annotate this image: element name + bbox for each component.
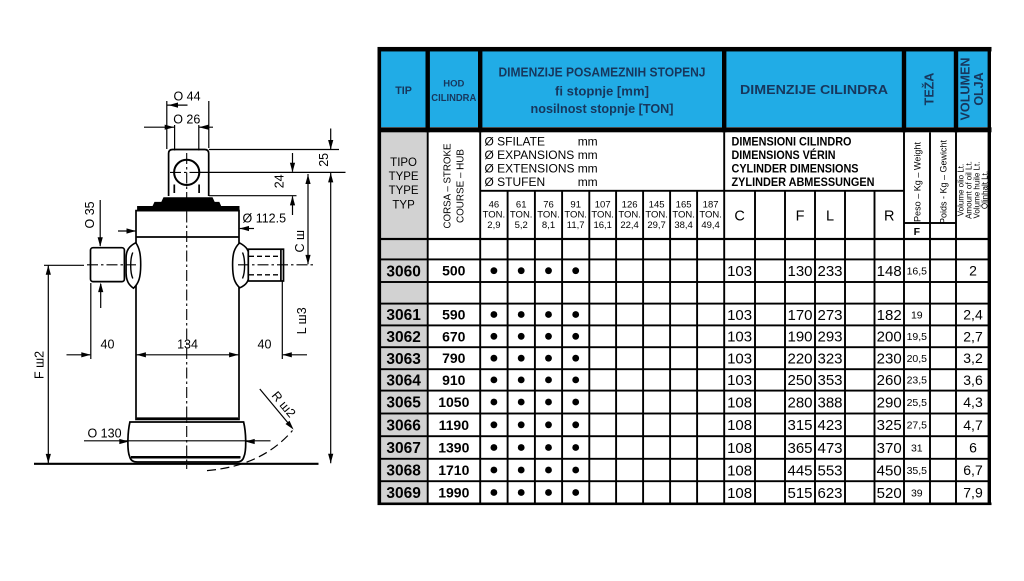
svg-text:CILINDRA: CILINDRA [431, 93, 476, 104]
svg-text:108: 108 [727, 394, 752, 411]
svg-text:353: 353 [817, 372, 842, 389]
svg-text:423: 423 [817, 417, 842, 434]
svg-text:fi stopnje [mm]: fi stopnje [mm] [555, 83, 649, 98]
svg-text:CORSA – STROKE: CORSA – STROKE [443, 143, 454, 228]
svg-text:TYP: TYP [392, 199, 415, 211]
svg-text:108: 108 [727, 440, 752, 457]
svg-text:TON.: TON. [645, 209, 668, 220]
svg-text:mm: mm [578, 135, 598, 149]
svg-text:130: 130 [787, 263, 812, 280]
svg-text:6,7: 6,7 [963, 462, 983, 478]
svg-text:VOLUMEN: VOLUMEN [959, 58, 973, 121]
svg-text:103: 103 [727, 372, 752, 389]
svg-text:230: 230 [877, 351, 902, 368]
svg-text:473: 473 [817, 440, 842, 457]
svg-text:16,5: 16,5 [907, 266, 928, 278]
svg-text:23,5: 23,5 [907, 375, 928, 387]
svg-text:19,5: 19,5 [907, 331, 928, 343]
svg-text:O 44: O 44 [173, 89, 200, 103]
svg-text:590: 590 [442, 307, 466, 323]
svg-text:8,1: 8,1 [542, 220, 555, 231]
svg-text:365: 365 [787, 440, 812, 457]
svg-text:TEŽA: TEŽA [922, 73, 937, 106]
svg-text:3060: 3060 [386, 263, 420, 280]
svg-text:OLJA: OLJA [972, 72, 986, 105]
svg-text:103: 103 [727, 307, 752, 324]
svg-text:3,2: 3,2 [963, 350, 983, 366]
svg-text:49,4: 49,4 [701, 220, 720, 231]
svg-text:ZYLINDER ABMESSUNGEN: ZYLINDER ABMESSUNGEN [732, 177, 875, 189]
svg-text:mm: mm [578, 162, 598, 176]
svg-text:CYLINDER DIMENSIONS: CYLINDER DIMENSIONS [732, 164, 859, 176]
svg-text:3066: 3066 [386, 417, 421, 434]
svg-text:31: 31 [911, 442, 923, 454]
svg-text:2,7: 2,7 [963, 328, 983, 344]
svg-text:39: 39 [911, 487, 923, 499]
svg-text:5,2: 5,2 [515, 220, 528, 231]
svg-text:220: 220 [787, 351, 812, 368]
svg-text:HOD: HOD [443, 78, 464, 89]
svg-text:108: 108 [727, 462, 752, 479]
svg-text:25: 25 [317, 153, 331, 167]
svg-text:3063: 3063 [386, 351, 421, 368]
svg-text:mm: mm [578, 148, 598, 162]
svg-text:315: 315 [787, 417, 812, 434]
svg-text:293: 293 [817, 329, 842, 346]
svg-text:Ø 112.5: Ø 112.5 [243, 212, 287, 226]
svg-text:40: 40 [101, 337, 115, 351]
svg-text:R: R [884, 209, 894, 225]
svg-text:3061: 3061 [386, 307, 421, 324]
svg-text:Peso – Kg – Weight: Peso – Kg – Weight [912, 142, 923, 222]
svg-text:38,4: 38,4 [674, 220, 693, 231]
svg-text:40: 40 [258, 337, 272, 351]
svg-text:182: 182 [877, 307, 902, 324]
svg-text:170: 170 [787, 307, 812, 324]
svg-text:134: 134 [177, 337, 198, 351]
svg-text:27,5: 27,5 [907, 420, 928, 432]
svg-text:2,9: 2,9 [487, 220, 500, 231]
svg-text:103: 103 [727, 329, 752, 346]
svg-text:Ø STUFEN: Ø STUFEN [485, 175, 546, 189]
svg-text:TON.: TON. [483, 209, 506, 220]
svg-text:TYPE: TYPE [389, 185, 419, 197]
svg-text:TON.: TON. [537, 209, 560, 220]
svg-text:Ölinhalt Lt.: Ölinhalt Lt. [981, 171, 990, 209]
svg-text:3065: 3065 [386, 395, 421, 412]
svg-text:TON.: TON. [564, 209, 587, 220]
svg-text:790: 790 [442, 350, 466, 366]
svg-text:L ш3: L ш3 [295, 307, 309, 334]
svg-text:323: 323 [817, 351, 842, 368]
svg-text:TON.: TON. [618, 209, 641, 220]
svg-text:TON.: TON. [510, 209, 533, 220]
svg-text:515: 515 [787, 485, 812, 502]
svg-text:250: 250 [787, 372, 812, 389]
svg-text:O 26: O 26 [173, 112, 200, 126]
svg-text:1050: 1050 [438, 394, 469, 410]
svg-text:623: 623 [817, 485, 842, 502]
svg-text:L: L [826, 209, 834, 225]
svg-text:388: 388 [817, 394, 842, 411]
svg-text:F: F [914, 226, 921, 238]
svg-text:DIMENSIONS VÉRIN: DIMENSIONS VÉRIN [732, 149, 836, 162]
svg-text:25,5: 25,5 [907, 397, 928, 409]
svg-text:19: 19 [911, 309, 923, 321]
svg-text:Ø EXTENSIONS: Ø EXTENSIONS [485, 162, 575, 176]
svg-text:22,4: 22,4 [620, 220, 639, 231]
svg-text:TIPO: TIPO [390, 157, 417, 169]
svg-text:670: 670 [442, 328, 466, 344]
svg-text:325: 325 [877, 417, 902, 434]
svg-text:103: 103 [727, 351, 752, 368]
svg-text:3064: 3064 [386, 373, 421, 390]
svg-text:DIMENZIJE POSAMEZNIH STOPENJ: DIMENZIJE POSAMEZNIH STOPENJ [499, 65, 706, 80]
svg-text:2,4: 2,4 [963, 307, 983, 323]
svg-text:O 130: O 130 [87, 426, 121, 440]
svg-text:29,7: 29,7 [647, 220, 666, 231]
svg-text:280: 280 [787, 394, 812, 411]
svg-text:nosilnost stopnje [TON]: nosilnost stopnje [TON] [531, 101, 674, 116]
svg-text:260: 260 [877, 372, 902, 389]
svg-text:1990: 1990 [438, 485, 469, 501]
svg-text:TIP: TIP [395, 85, 412, 97]
svg-text:3068: 3068 [386, 463, 421, 480]
svg-text:445: 445 [787, 462, 812, 479]
svg-text:C ш: C ш [293, 230, 307, 253]
svg-text:F ш2: F ш2 [33, 351, 47, 379]
svg-text:200: 200 [877, 329, 902, 346]
svg-text:370: 370 [877, 440, 902, 457]
svg-text:450: 450 [877, 462, 902, 479]
svg-text:4,3: 4,3 [963, 394, 983, 410]
svg-text:273: 273 [817, 307, 842, 324]
svg-text:3,6: 3,6 [963, 372, 983, 388]
svg-text:233: 233 [817, 263, 842, 280]
svg-text:DIMENSIONI CILINDRO: DIMENSIONI CILINDRO [732, 137, 852, 149]
svg-text:TON.: TON. [699, 209, 722, 220]
svg-text:1390: 1390 [438, 440, 469, 456]
svg-text:500: 500 [442, 263, 466, 279]
svg-text:TON.: TON. [591, 209, 614, 220]
svg-text:1190: 1190 [439, 417, 470, 433]
svg-text:190: 190 [787, 329, 812, 346]
svg-text:Ø EXPANSIONS: Ø EXPANSIONS [485, 148, 575, 162]
svg-text:3069: 3069 [386, 485, 421, 502]
svg-text:24: 24 [272, 174, 286, 188]
svg-text:148: 148 [877, 263, 902, 280]
svg-text:TYPE: TYPE [389, 171, 419, 183]
svg-text:DIMENZIJE CILINDRA: DIMENZIJE CILINDRA [740, 82, 888, 97]
svg-text:TON.: TON. [672, 209, 695, 220]
svg-text:290: 290 [877, 394, 902, 411]
svg-text:7,9: 7,9 [963, 485, 983, 501]
svg-text:Ø SFILATE: Ø SFILATE [485, 135, 545, 149]
svg-text:11,7: 11,7 [567, 220, 585, 231]
svg-text:553: 553 [817, 462, 842, 479]
svg-text:35,5: 35,5 [907, 465, 928, 477]
svg-text:108: 108 [727, 485, 752, 502]
svg-text:103: 103 [727, 263, 752, 280]
svg-text:mm: mm [578, 175, 598, 189]
svg-text:COURSE – HUB: COURSE – HUB [456, 149, 467, 223]
svg-text:20,5: 20,5 [907, 353, 928, 365]
svg-text:O 35: O 35 [83, 201, 97, 228]
svg-text:3067: 3067 [386, 440, 420, 457]
svg-text:F: F [796, 209, 805, 225]
svg-text:3062: 3062 [386, 329, 420, 346]
svg-text:910: 910 [442, 372, 466, 388]
svg-text:6: 6 [969, 440, 977, 456]
svg-text:C: C [734, 209, 744, 225]
svg-text:Poids - Kg – Gewicht: Poids - Kg – Gewicht [938, 140, 949, 224]
svg-text:520: 520 [877, 485, 902, 502]
svg-text:4,7: 4,7 [963, 417, 983, 433]
svg-text:2: 2 [969, 263, 977, 279]
svg-text:16,1: 16,1 [593, 220, 612, 231]
svg-text:1710: 1710 [438, 462, 469, 478]
svg-text:108: 108 [727, 417, 752, 434]
